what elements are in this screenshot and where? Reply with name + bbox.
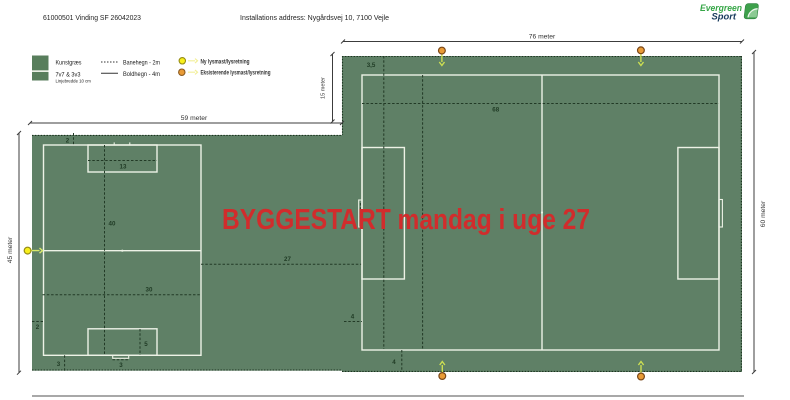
svg-text:Kunstgræs: Kunstgræs	[56, 61, 82, 67]
svg-text:2: 2	[66, 138, 70, 145]
svg-text:45 meter: 45 meter	[7, 236, 14, 263]
svg-text:3: 3	[57, 361, 61, 368]
svg-text:Eksisterende lysmast/lysretnin: Eksisterende lysmast/lysretning	[201, 71, 271, 77]
svg-text:Boldhegn - 4m: Boldhegn - 4m	[123, 72, 160, 78]
svg-text:30: 30	[146, 287, 153, 294]
svg-text:Ny lysmast/lysretning: Ny lysmast/lysretning	[201, 59, 250, 65]
svg-text:4: 4	[351, 314, 355, 321]
svg-text:60 meter: 60 meter	[760, 200, 767, 227]
svg-text:3: 3	[119, 362, 123, 369]
svg-text:13: 13	[120, 164, 127, 171]
svg-text:76 meter: 76 meter	[529, 34, 556, 41]
svg-text:40: 40	[109, 221, 116, 228]
svg-text:61000501 Vinding SF 26042023: 61000501 Vinding SF 26042023	[43, 13, 141, 22]
svg-text:15 meter: 15 meter	[321, 77, 327, 99]
svg-text:Linjebredde 10 cm: Linjebredde 10 cm	[56, 79, 92, 84]
svg-text:5: 5	[144, 341, 148, 348]
svg-text:BYGGESTART mandag i uge 27: BYGGESTART mandag i uge 27	[222, 204, 590, 236]
svg-text:2: 2	[36, 324, 40, 331]
svg-text:Installations address: Nygårds: Installations address: Nygårdsvej 10, 71…	[240, 13, 389, 22]
svg-text:Sport: Sport	[712, 12, 738, 22]
svg-text:4: 4	[392, 359, 396, 366]
svg-text:Banehegn - 2m: Banehegn - 2m	[123, 61, 160, 67]
svg-text:3,5: 3,5	[367, 62, 376, 69]
svg-text:27: 27	[284, 256, 291, 263]
svg-text:59 meter: 59 meter	[181, 115, 208, 122]
svg-text:68: 68	[492, 107, 499, 114]
